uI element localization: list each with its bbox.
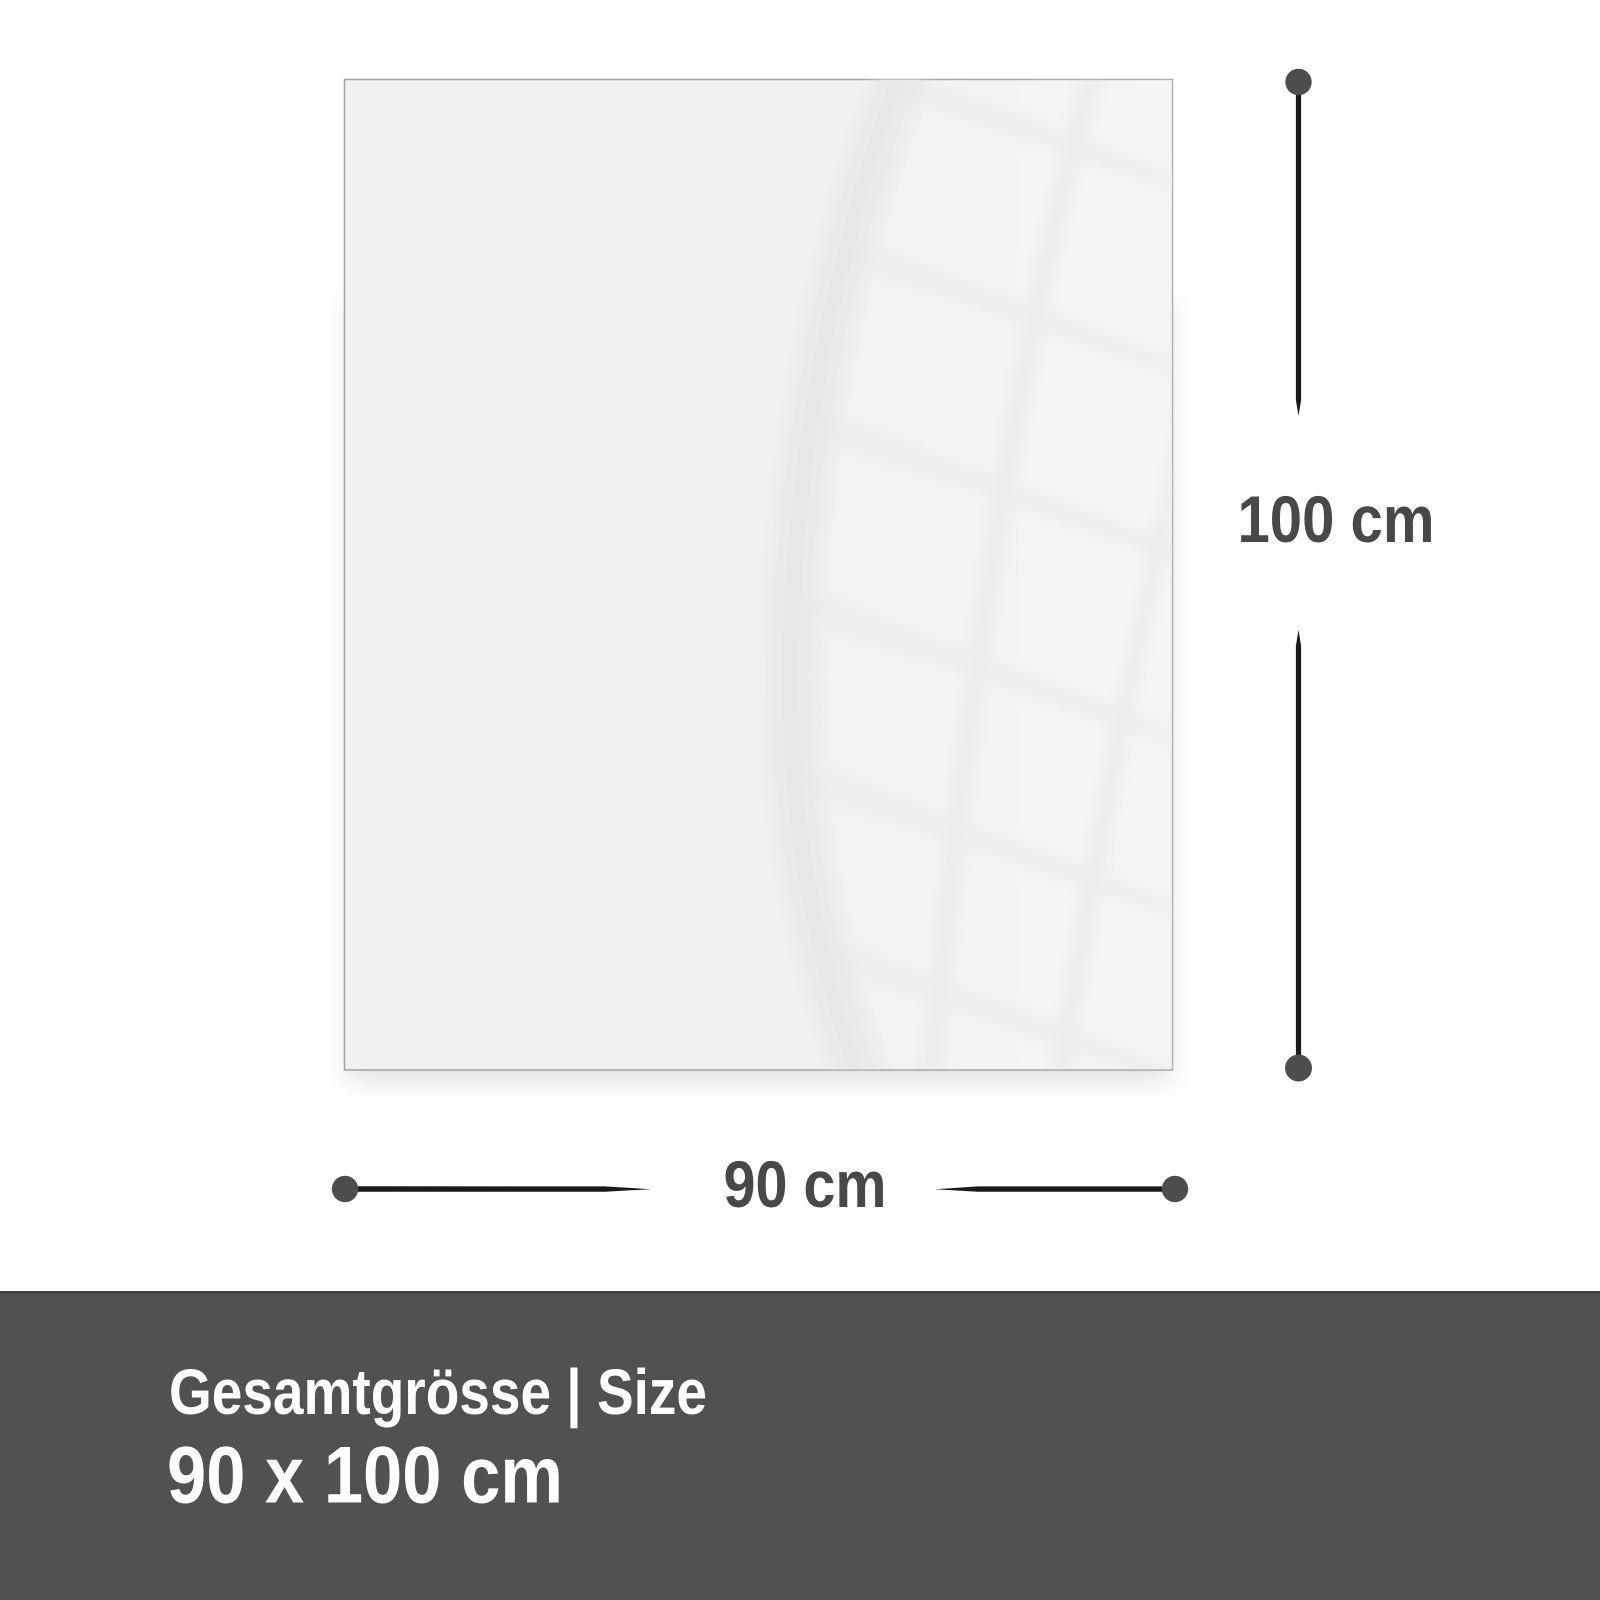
- svg-text:90 cm: 90 cm: [724, 1148, 887, 1221]
- svg-text:Gesamtgrösse | Size: Gesamtgrösse | Size: [169, 1356, 707, 1429]
- svg-text:90 x 100 cm: 90 x 100 cm: [167, 1431, 563, 1521]
- svg-text:100 cm: 100 cm: [1238, 483, 1435, 556]
